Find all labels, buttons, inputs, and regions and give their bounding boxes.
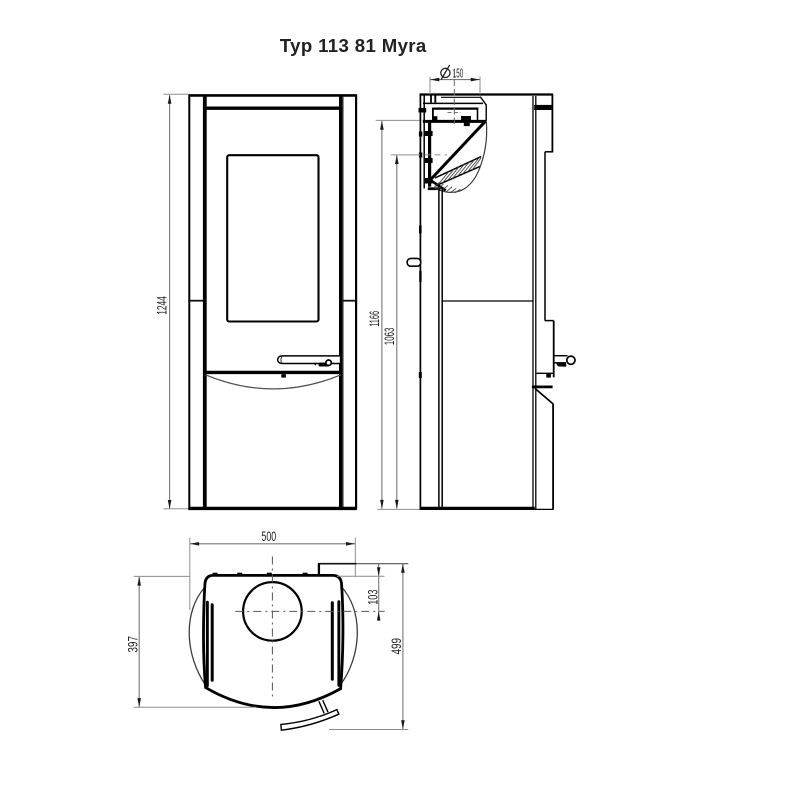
svg-text:397: 397 — [126, 636, 141, 653]
svg-text:500: 500 — [261, 529, 276, 544]
svg-text:499: 499 — [389, 638, 404, 655]
svg-text:Typ 113 81 Myra: Typ 113 81 Myra — [280, 35, 427, 56]
svg-text:1244: 1244 — [155, 296, 170, 315]
svg-text:1166: 1166 — [367, 311, 382, 327]
svg-text:103: 103 — [366, 590, 381, 605]
svg-text:1063: 1063 — [382, 328, 397, 346]
